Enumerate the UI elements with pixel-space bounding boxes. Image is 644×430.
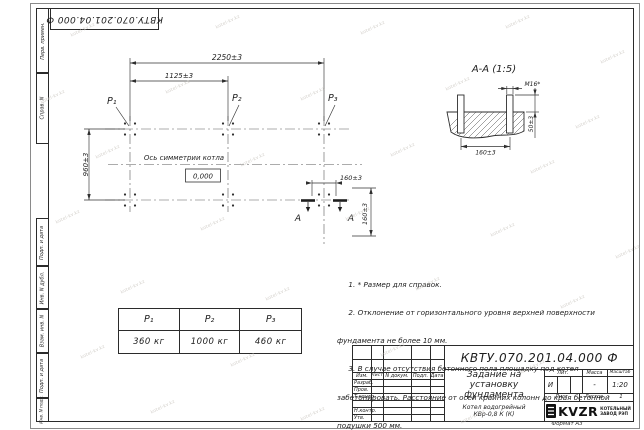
- load-table-value-p1: 360 кг: [119, 331, 180, 353]
- company-cell: KVZR КОТЕЛЬНЫЙ ЗАВОД РЭП: [544, 401, 633, 421]
- product-name: Котел водогрейный КВр-0,8 К (К): [444, 401, 544, 421]
- tb-col-podp: Подп.: [411, 372, 430, 379]
- tb-row-utv: Утв.: [354, 414, 384, 421]
- section-letter-1: А: [294, 214, 301, 224]
- drawing-sheet: { "watermark": { "text": "kotel-kv.kz" }…: [0, 0, 644, 430]
- note-line: 2. Отклонение от горизонтального уровня …: [337, 308, 637, 317]
- load-table-value-p2: 1000 кг: [180, 331, 241, 353]
- anchor-bolt-right: [507, 95, 514, 133]
- load-table-header-p1: P₁: [119, 309, 180, 331]
- company-name: KVZR: [558, 404, 598, 419]
- bolt-size-label: M16*: [525, 81, 541, 88]
- drawing-title: Задание на установку фундамента: [444, 369, 544, 401]
- company-subtitle: КОТЕЛЬНЫЙ ЗАВОД РЭП: [600, 406, 631, 416]
- tb-col-data: Дата: [430, 372, 444, 379]
- load-table-value-p3: 460 кг: [240, 331, 301, 353]
- symmetry-axis-label: Ось симметрии котла: [144, 154, 224, 162]
- tb-scale-value: 1:20: [607, 376, 633, 393]
- section-letter-2: А: [347, 214, 354, 224]
- margin-cell-podp-data-1: Подп. и дата: [36, 218, 49, 267]
- load-table-header-p3: P₃: [240, 309, 301, 331]
- section-dim-width-label: 160±3: [475, 150, 495, 157]
- tb-mass-header: Масса: [582, 369, 607, 376]
- rotated-designation-text: КВТУ.070.201.04.000 Ф: [46, 14, 163, 24]
- concrete-hatching: [434, 106, 554, 142]
- anchor-bolt-left: [458, 95, 465, 133]
- tb-lit-header: Лит.: [544, 369, 582, 376]
- dim-cut-v-label: 160±3: [361, 203, 369, 225]
- document-number: КВТУ.070.201.04.000 Ф: [446, 346, 633, 369]
- margin-cell-inv-podl: Инв. N подл.: [36, 397, 49, 422]
- rotated-designation-stamp: КВТУ.070.201.04.000 Ф: [50, 8, 159, 30]
- load-table: P₁ P₂ P₃ 360 кг 1000 кг 460 кг: [118, 308, 302, 354]
- kvzr-logo-icon: [546, 404, 556, 418]
- plan-dimension-lines: [84, 58, 376, 236]
- format-label: Формат А3: [537, 421, 597, 427]
- load-point-p2-label: P₂: [232, 93, 242, 104]
- dim-total-label: 2250±3: [212, 53, 242, 62]
- dim-depth-label: 960±3: [82, 153, 90, 177]
- load-point-p1-label: P₁: [107, 96, 117, 107]
- tb-row-prov: Пров.: [354, 386, 384, 393]
- tb-scale-header: Масштаб: [607, 369, 633, 376]
- plan-anchor-bolt-dots: [124, 122, 330, 206]
- tb-col-ndokum: N докум.: [383, 372, 411, 379]
- tb-col-izm: Изм.: [353, 372, 371, 379]
- tb-sheets-label: Листов: [581, 393, 607, 401]
- tb-row-tkontr: Т.контр.: [354, 393, 384, 400]
- section-dim-height-label: 50±3: [528, 116, 535, 133]
- load-point-p3-label: P₃: [328, 93, 338, 104]
- dim-cut-h-label: 160±3: [340, 174, 362, 182]
- note-line: 1. * Размер для справок.: [337, 280, 637, 289]
- margin-cell-perv-primen: Перв. примен.: [36, 8, 49, 74]
- tb-lit-value: И: [544, 376, 557, 393]
- tb-mass-value: -: [582, 376, 607, 393]
- elevation-value: 0,000: [193, 173, 214, 181]
- title-block: Изм. Лист N докум. Подп. Дата Разраб. Пр…: [352, 345, 634, 422]
- margin-cell-vzam-inv: Взам. инв. N: [36, 308, 49, 354]
- dim-half-label: 1125±3: [165, 72, 193, 80]
- tb-sheet-label: Лист: [544, 393, 579, 401]
- margin-cell-podp-data-2: Подп. и дата: [36, 352, 49, 399]
- tb-row-nkontr: Н.контр.: [354, 407, 384, 414]
- section-title: А-А (1:5): [471, 64, 516, 75]
- tb-sheets-value: 1: [613, 393, 629, 401]
- tb-row-razrab: Разраб.: [354, 379, 384, 386]
- margin-cell-inv-dubl: Инв. N дубл.: [36, 265, 49, 310]
- load-table-header-p2: P₂: [180, 309, 241, 331]
- tb-col-list: Лист: [371, 372, 383, 379]
- margin-cell-sprav-n: Справ. N: [36, 72, 49, 144]
